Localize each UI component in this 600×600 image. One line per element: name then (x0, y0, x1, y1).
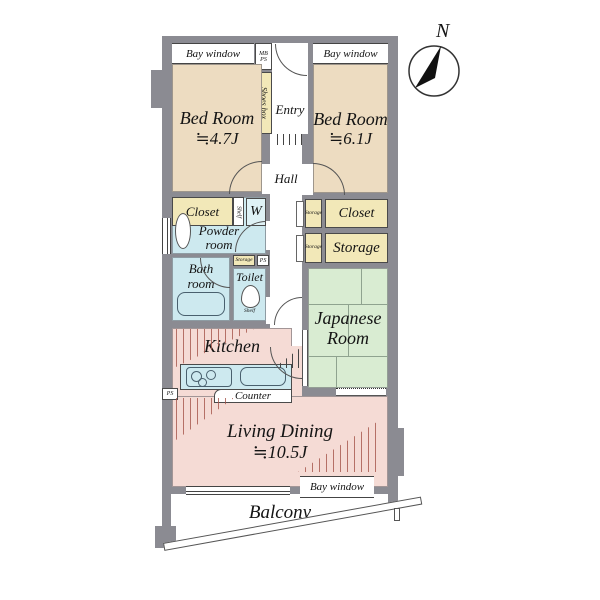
window-line (167, 218, 168, 254)
pipe-space-mid-label: PS (260, 258, 267, 264)
japanese-room: Japanese Room (308, 268, 388, 388)
japanese-room-line1: Japanese (315, 308, 382, 328)
washbasin (175, 213, 191, 249)
japanese-room-line2: Room (327, 328, 369, 348)
stove (186, 367, 232, 387)
bedroom-2-name: Bed Room (313, 109, 387, 129)
living-dining-name: Living Dining (227, 421, 333, 442)
bay-window-bottom: Bay window (300, 476, 374, 498)
compass-north: N (436, 20, 449, 43)
toilet-label: Toilet (236, 271, 263, 284)
bedroom-2-size: ≒6.1J (329, 129, 372, 148)
bathtub (177, 292, 225, 316)
storage-right: Storage (325, 233, 388, 263)
tatami-line (361, 268, 362, 304)
pipe-space-mid: PS (257, 255, 269, 266)
bedroom-1-size: ≒4.7J (195, 129, 238, 148)
hall-label: Hall (274, 172, 297, 187)
storage-small-upper-label: Storage (305, 211, 322, 217)
window-line (186, 491, 290, 492)
compass (404, 40, 464, 98)
toilet-shelf-label: Shelf (244, 308, 255, 314)
storage-small-lower: Storage (305, 233, 322, 263)
wall-stub-top-left (151, 70, 164, 108)
bay-window-label: Bay window (186, 48, 240, 60)
door-gap-bedroom-1 (262, 164, 270, 194)
door-gap-powder (266, 221, 270, 250)
shelf-left: Shelf (233, 197, 244, 226)
living-dining-size: ≒10.5J (253, 442, 308, 462)
entry-label: Entry (276, 103, 305, 118)
closet-right-label: Closet (339, 207, 375, 221)
bay-window-top-left: Bay window (172, 43, 254, 64)
storage-small-lower-label: Storage (305, 245, 322, 251)
japanese-room-slider-bottom (336, 388, 386, 396)
compass-north-label: N (436, 20, 449, 42)
floor-plan: Bay window MB PS Entry Bay window Shoes … (0, 0, 600, 600)
window-living-bottom (186, 486, 290, 495)
pipe-space-kitchen-label: PS (167, 391, 174, 397)
tatami-line (336, 356, 337, 388)
bedroom-1-name: Bed Room (180, 108, 254, 128)
stove-burner (206, 370, 216, 380)
bay-window-top-right: Bay window (313, 43, 388, 64)
counter-label: Counter (235, 391, 271, 402)
japanese-room-slider-left (302, 330, 308, 386)
stove-burner (198, 378, 207, 387)
bifold-door-upper (296, 201, 304, 227)
toilet-bowl (241, 285, 260, 308)
closet-left-label: Closet (186, 205, 219, 218)
storage-mini: Storage (233, 255, 255, 266)
storage-small-upper: Storage (305, 199, 322, 228)
closet-right: Closet (325, 199, 388, 228)
pipe-space-label: PS (260, 57, 267, 63)
bay-window-label: Bay window (310, 481, 364, 493)
pipe-space-kitchen: PS (162, 388, 178, 400)
entry-step-ticks (277, 134, 305, 145)
shelf-left-label: Shelf (236, 206, 242, 218)
door-gap-toilet (266, 297, 270, 324)
powder-room-line1: Powder (199, 224, 239, 239)
toilet-shelf: Shelf (233, 308, 266, 314)
window-left-wall (162, 218, 171, 254)
storage-right-label: Storage (333, 241, 380, 256)
balcony-post (394, 508, 400, 521)
door-gap-bedroom-2 (302, 164, 313, 195)
powder-room-line2: room (206, 238, 233, 253)
tatami-line (308, 356, 388, 357)
washing-machine-label: W (250, 205, 262, 219)
bifold-door-lower (296, 235, 304, 262)
bay-window-label: Bay window (323, 48, 377, 60)
storage-mini-label: Storage (235, 258, 252, 264)
